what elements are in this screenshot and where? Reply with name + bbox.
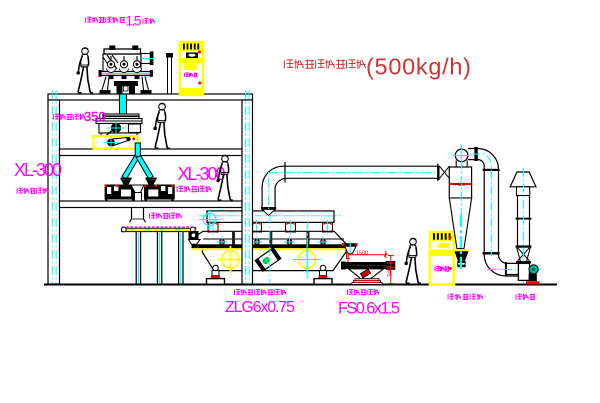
svg-text:FS0.6x1.5: FS0.6x1.5 [338,300,400,318]
svg-text:ZLG6x0.75: ZLG6x0.75 [225,299,295,316]
svg-text:340: 340 [388,268,394,277]
svg-text:P600: P600 [455,182,466,187]
svg-text:1500: 1500 [356,251,368,257]
svg-text:350: 350 [84,109,106,124]
svg-text:XL-300: XL-300 [14,160,62,180]
svg-text:(500kg/h): (500kg/h) [366,54,471,80]
svg-text:1.5: 1.5 [126,14,142,29]
